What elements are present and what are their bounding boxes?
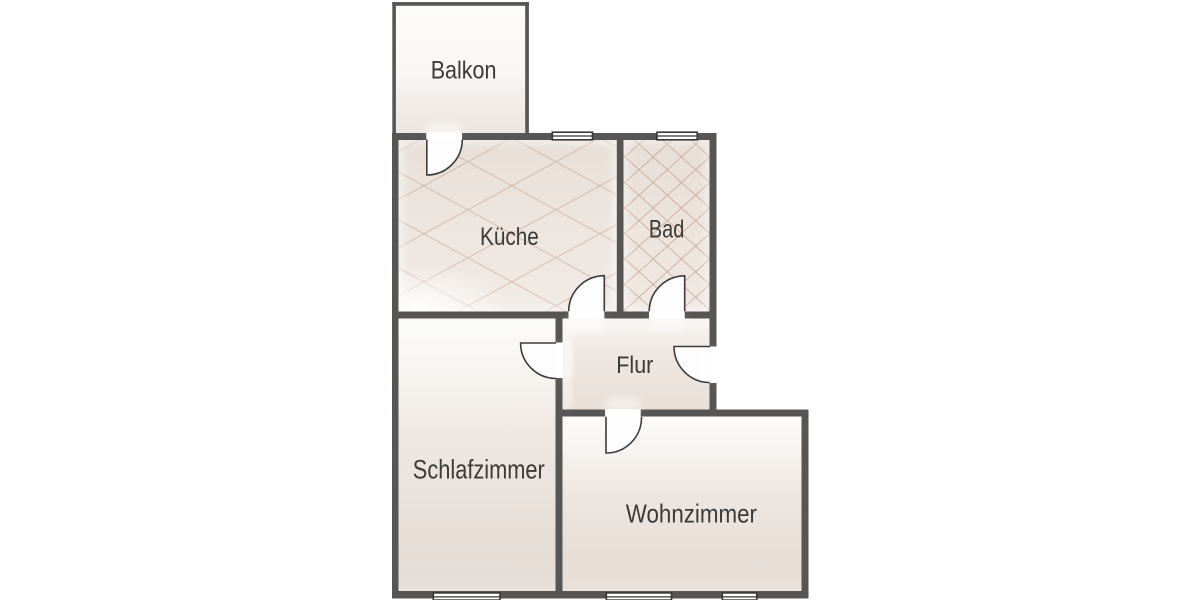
svg-text:Küche: Küche (480, 223, 539, 251)
svg-text:Flur: Flur (616, 352, 653, 379)
svg-text:Bad: Bad (649, 216, 684, 244)
svg-text:Schlafzimmer: Schlafzimmer (413, 454, 545, 484)
svg-text:Wohnzimmer: Wohnzimmer (626, 498, 757, 528)
svg-text:Balkon: Balkon (431, 57, 497, 85)
